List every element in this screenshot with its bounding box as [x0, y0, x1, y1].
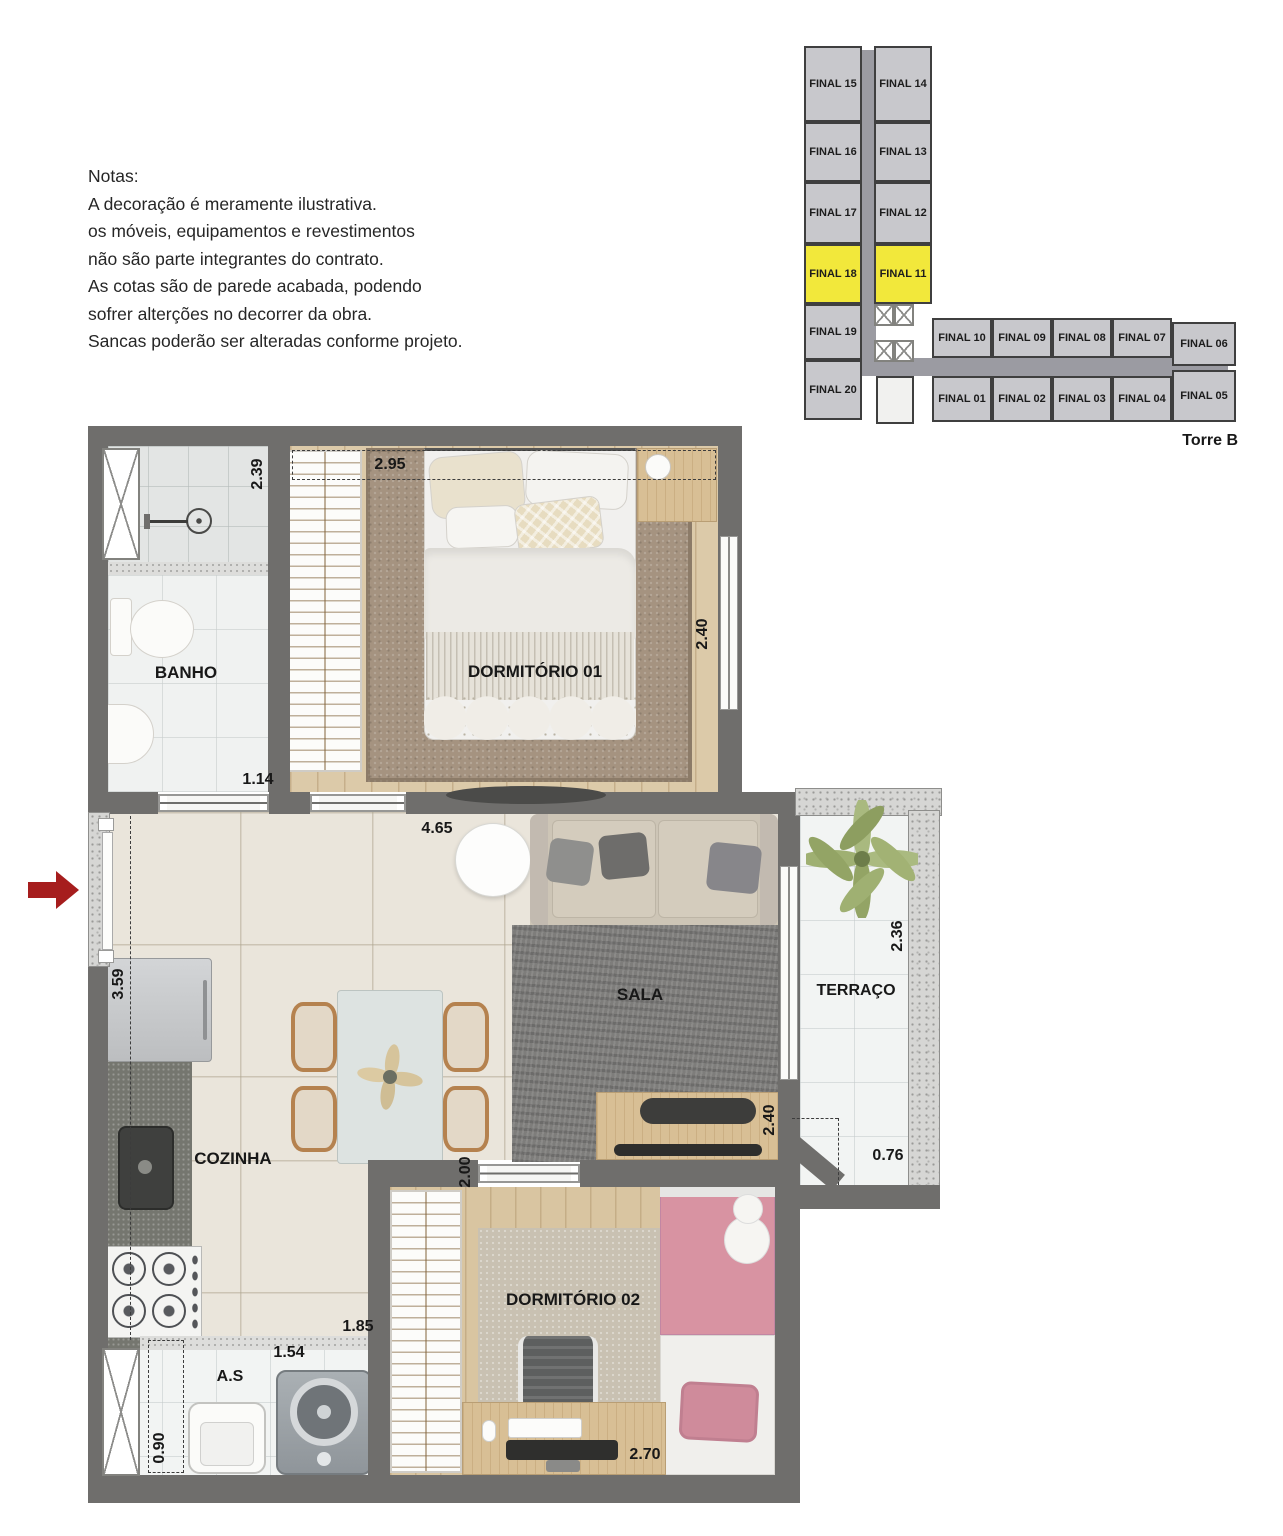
toilet-tank — [110, 598, 132, 656]
wall-mid — [88, 792, 158, 814]
bedroom2-headboard — [660, 1187, 775, 1197]
notes-line: sofrer alterções no decorrer da obra. — [88, 301, 528, 329]
notes-line: não são parte integrantes do contrato. — [88, 246, 528, 274]
notes-line: os móveis, equipamentos e revestimentos — [88, 218, 528, 246]
dim-terrace-depth: 2.36 — [889, 906, 907, 966]
wall-top — [88, 426, 742, 446]
table-centerpiece-icon — [356, 1044, 424, 1110]
dim-living-width: 4.65 — [407, 820, 467, 838]
bed-ruffle — [424, 694, 636, 740]
laundry-tank-basin — [200, 1422, 254, 1466]
dining-chair — [291, 1086, 337, 1152]
monitor-stand-icon — [546, 1460, 580, 1472]
toilet-bowl — [130, 600, 194, 658]
dim-dorm1-width: 2.95 — [360, 456, 420, 474]
dim-laundry-depth: 0.90 — [151, 1418, 169, 1478]
room-label-living: SALA — [605, 986, 675, 1004]
notes-title: Notas: — [88, 163, 528, 191]
elevator-shaft-icon — [874, 304, 894, 326]
keyplan-unit-final-01: FINAL 01 — [932, 376, 992, 422]
entry-arrow-icon — [56, 871, 79, 909]
kitchen-faucet-icon — [138, 1160, 152, 1174]
tv-icon — [614, 1144, 762, 1156]
wall-terrace-bottom — [778, 1185, 940, 1209]
keyplan-unit-final-02: FINAL 02 — [992, 376, 1052, 422]
washing-machine-knob-icon — [317, 1452, 331, 1466]
keyboard-icon — [508, 1418, 582, 1438]
keyplan-unit-final-07: FINAL 07 — [1112, 318, 1172, 358]
sofa-arm — [530, 814, 548, 926]
teddy-bear-icon — [733, 1194, 763, 1224]
bedroom2-closet — [390, 1190, 462, 1473]
dim-dorm1-depth: 2.40 — [694, 604, 712, 664]
keyplan-unit-final-18-highlighted: FINAL 18 — [804, 244, 862, 304]
notes-line: A decoração é meramente ilustrativa. — [88, 191, 528, 219]
terrace-dashed-line — [792, 1118, 838, 1120]
laundry-window-shaft-icon — [102, 1348, 140, 1476]
keyplan-unit-final-11-highlighted: FINAL 11 — [874, 244, 932, 304]
stove-burner-icon — [152, 1294, 186, 1328]
wall-bathroom-divider — [268, 446, 290, 792]
laptop-icon — [640, 1098, 756, 1124]
keyplan-unit-final-15: FINAL 15 — [804, 46, 862, 122]
sofa-pillow — [706, 841, 763, 894]
desk-chair — [518, 1336, 598, 1410]
bedroom1-window — [720, 536, 738, 710]
keyplan-unit-final-08: FINAL 08 — [1052, 318, 1112, 358]
floor-plan-sheet: Notas: A decoração é meramente ilustrati… — [0, 0, 1283, 1536]
monitor-icon — [506, 1440, 618, 1460]
keyplan-unit-final-13: FINAL 13 — [874, 122, 932, 182]
dim-banho-width: 1.14 — [228, 771, 288, 789]
ceiling-sanca-dashed-outline — [292, 450, 716, 480]
dim-living-depth: 2.40 — [761, 1090, 779, 1150]
keyplan: FINAL 15 FINAL 14 FINAL 16 FINAL 13 FINA… — [798, 40, 1245, 452]
upper-cabinet-dashed-line — [130, 816, 132, 1340]
shower-drain-icon — [186, 508, 212, 534]
tower-label: Torre B — [1148, 432, 1238, 450]
stove-burner-icon — [152, 1252, 186, 1286]
entry-door-jamb — [98, 818, 114, 831]
washing-machine-center-icon — [317, 1405, 331, 1419]
notes-block: Notas: A decoração é meramente ilustrati… — [88, 163, 528, 356]
keyplan-unit-final-17: FINAL 17 — [804, 182, 862, 244]
bedroom2-sliding-door — [478, 1164, 580, 1183]
wall-bedroom2-top — [580, 1160, 790, 1187]
bedroom1-sliding-door — [310, 794, 406, 812]
refrigerator-handle — [203, 980, 207, 1040]
wall-bedroom2-right — [775, 1185, 800, 1503]
mouse-icon — [482, 1420, 496, 1442]
keyplan-unit-final-04: FINAL 04 — [1112, 376, 1172, 422]
entry-arrow-icon — [28, 882, 56, 898]
dining-chair — [291, 1002, 337, 1072]
stove-burner-icon — [112, 1294, 146, 1328]
shower-arm-icon — [148, 520, 188, 523]
keyplan-unit-final-19: FINAL 19 — [804, 304, 862, 360]
bathroom-tile-strip — [108, 562, 268, 575]
room-label-bedroom1: DORMITÓRIO 01 — [440, 663, 630, 681]
keyplan-unit-final-10: FINAL 10 — [932, 318, 992, 358]
terrace-dashed-line — [838, 1118, 840, 1185]
keyplan-unit-final-20: FINAL 20 — [804, 360, 862, 420]
entry-door-leaf — [102, 832, 113, 950]
notes-line: Sancas poderão ser alteradas conforme pr… — [88, 328, 528, 356]
bathroom-window-shaft-icon — [102, 448, 140, 560]
elevator-shaft-icon — [894, 304, 914, 326]
keyplan-unit-final-14: FINAL 14 — [874, 46, 932, 122]
stairwell-box — [876, 376, 914, 424]
sofa-pillow — [545, 837, 595, 887]
dim-banho-depth: 2.39 — [249, 444, 267, 504]
dim-terrace-width: 0.76 — [858, 1147, 918, 1165]
room-label-laundry: A.S — [204, 1368, 256, 1386]
bedroom2-pillow — [679, 1381, 760, 1443]
wall-mid — [269, 792, 310, 814]
keyplan-unit-final-03: FINAL 03 — [1052, 376, 1112, 422]
wall-left — [88, 446, 108, 1503]
bedroom1-closet — [288, 450, 362, 772]
sofa-arm — [760, 814, 778, 926]
stove-knobs-icon — [190, 1252, 200, 1332]
keyplan-unit-final-16: FINAL 16 — [804, 122, 862, 182]
room-label-bedroom2: DORMITÓRIO 02 — [498, 1291, 648, 1309]
dim-laundry-width: 1.54 — [259, 1344, 319, 1362]
stove-burner-icon — [112, 1252, 146, 1286]
wall-bottom — [88, 1475, 800, 1503]
keyplan-unit-final-06: FINAL 06 — [1172, 322, 1236, 366]
dim-kitchen-depth: 3.59 — [110, 954, 128, 1014]
notes-line: As cotas são de parede acabada, podendo — [88, 273, 528, 301]
keyplan-unit-final-05: FINAL 05 — [1172, 370, 1236, 422]
room-label-kitchen: COZINHA — [192, 1150, 274, 1168]
dim-dorm2-width: 2.70 — [615, 1446, 675, 1464]
elevator-shaft-icon — [874, 340, 894, 362]
shower-valve-icon — [144, 514, 150, 529]
bed-pillow — [445, 505, 518, 549]
room-label-bathroom: BANHO — [140, 664, 232, 682]
dining-chair — [443, 1002, 489, 1072]
terrace-plant-icon — [806, 800, 918, 918]
dim-closet2-depth: 2.00 — [457, 1142, 475, 1202]
bed-duvet — [424, 548, 636, 640]
room-label-terrace: TERRAÇO — [810, 982, 902, 1000]
bed-foot-bench — [446, 786, 606, 804]
keyplan-unit-final-09: FINAL 09 — [992, 318, 1052, 358]
terrace-sliding-door — [780, 866, 798, 1080]
sofa-pillow — [598, 832, 650, 881]
keyplan-unit-final-12: FINAL 12 — [874, 182, 932, 244]
dim-kitchen-width: 1.85 — [328, 1318, 388, 1336]
bathroom-sliding-door — [158, 794, 269, 812]
elevator-shaft-icon — [894, 340, 914, 362]
